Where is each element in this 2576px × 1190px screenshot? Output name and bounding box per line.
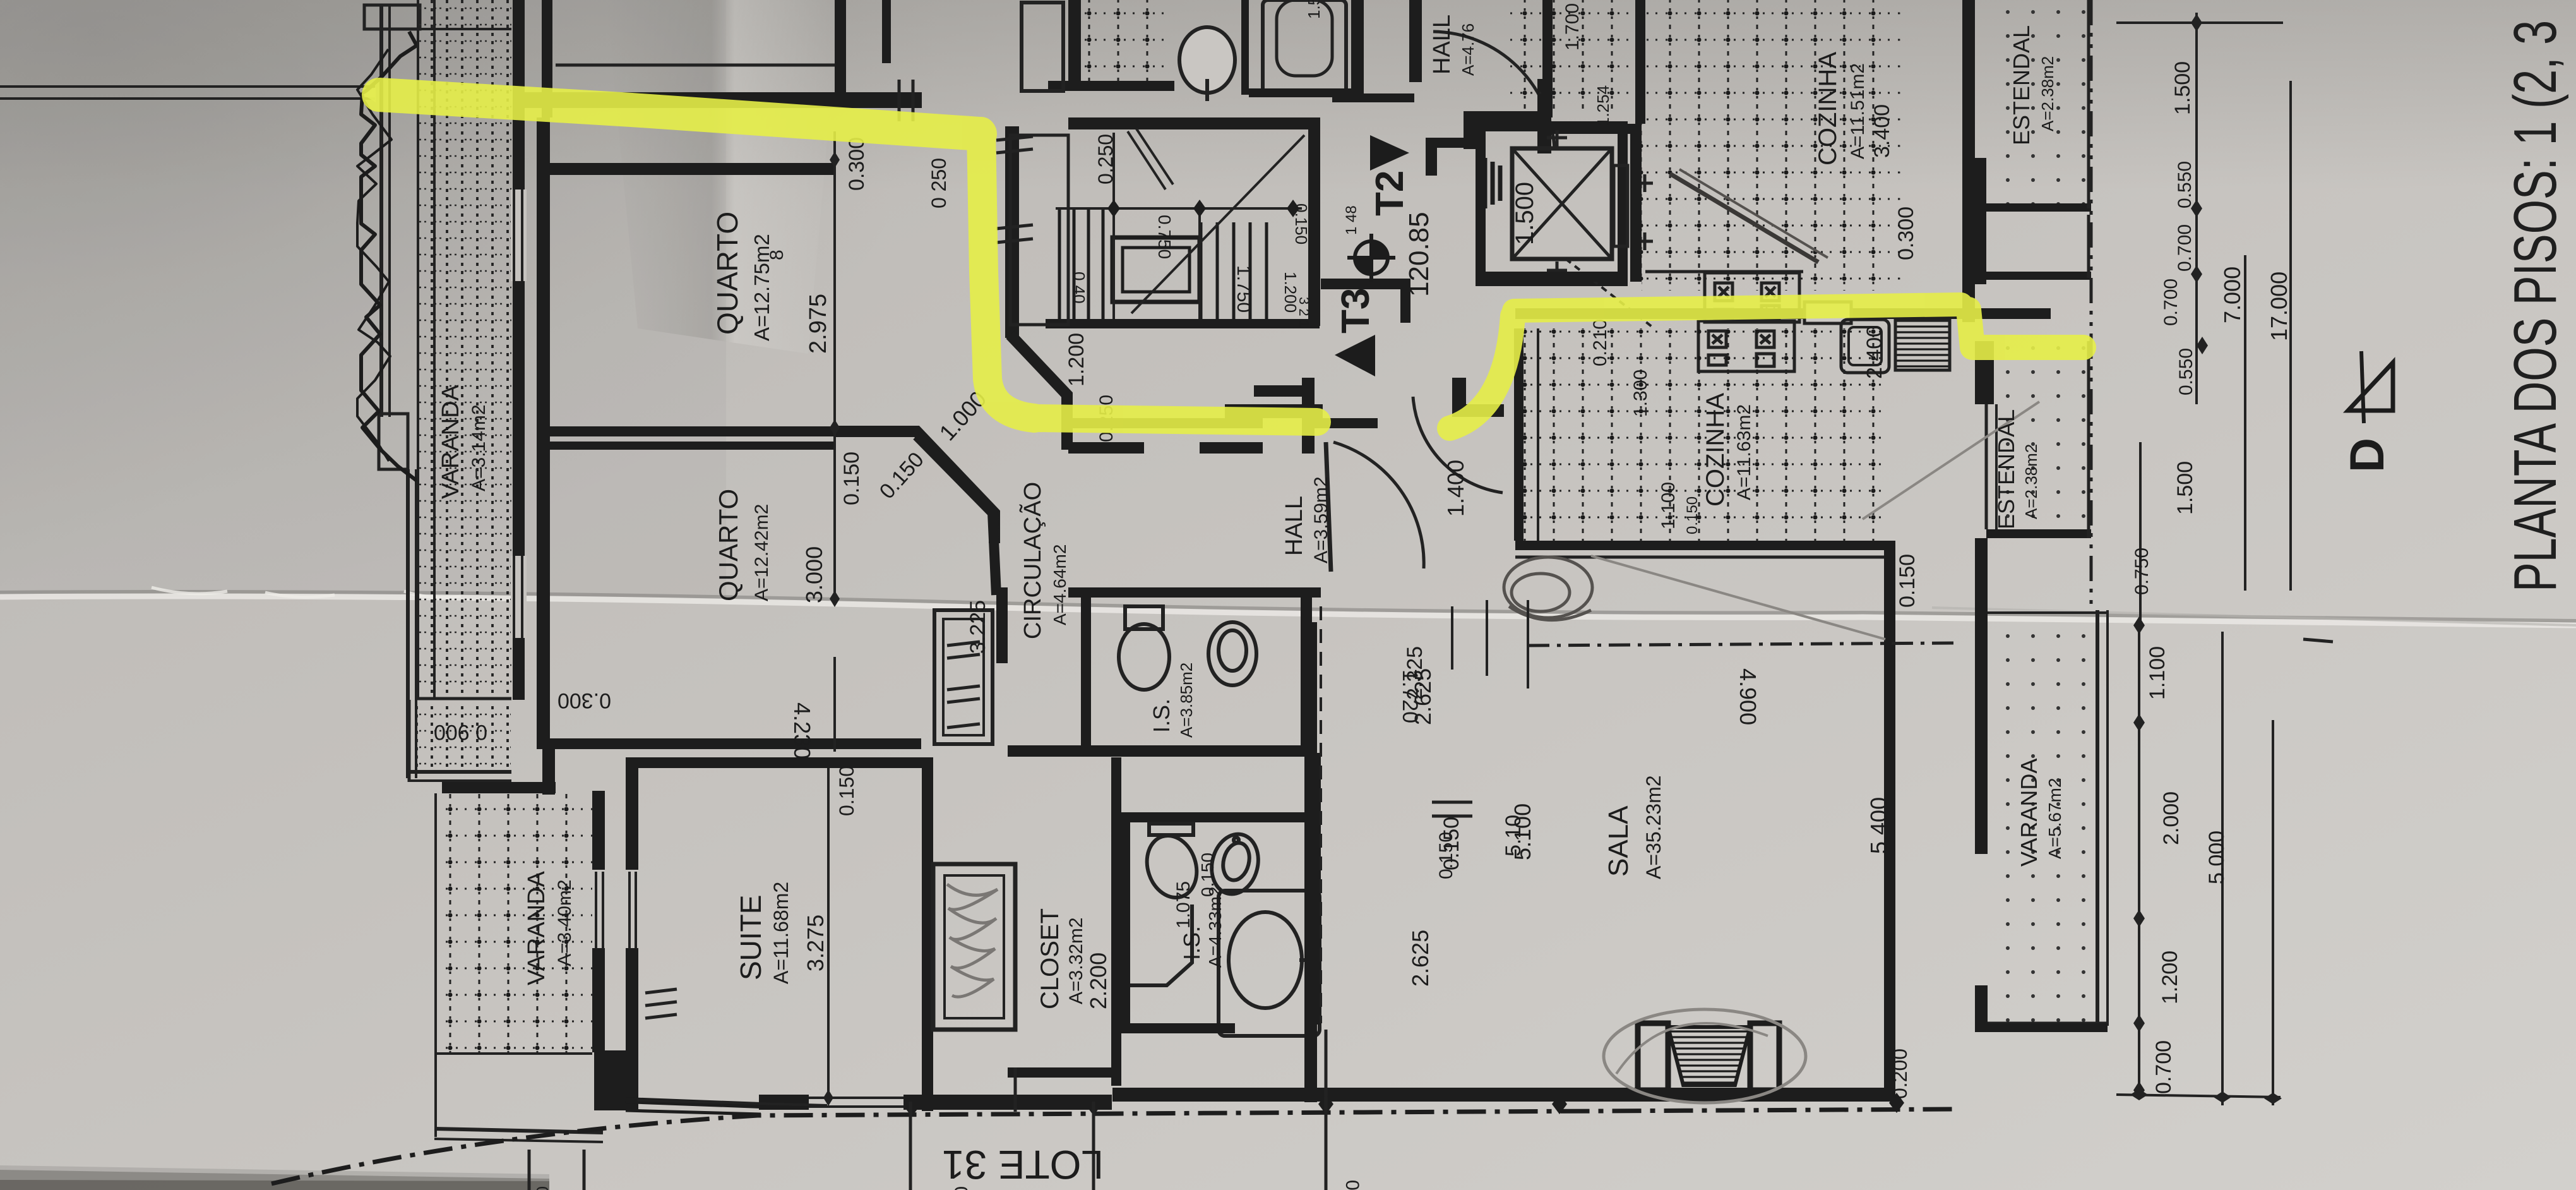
- svg-text:0.150: 0.150: [1440, 817, 1464, 870]
- svg-text:0.200: 0.200: [1888, 1049, 1911, 1099]
- svg-text:1.500: 1.500: [2171, 61, 2195, 115]
- svg-text:A=2.38m2: A=2.38m2: [2022, 444, 2041, 519]
- svg-text:1.700: 1.700: [1562, 3, 1583, 51]
- svg-text:A=3.59m2: A=3.59m2: [1311, 476, 1332, 563]
- svg-text:1.5: 1.5: [1304, 0, 1323, 19]
- svg-text:HALL: HALL: [1429, 15, 1455, 75]
- svg-text:0.750: 0.750: [1155, 215, 1174, 259]
- svg-text:1.075: 1.075: [1173, 881, 1194, 929]
- svg-text:I.S.: I.S.: [1148, 699, 1174, 733]
- svg-text:120.85: 120.85: [1404, 212, 1434, 297]
- svg-text:3.225: 3.225: [966, 600, 990, 654]
- svg-text:0.700: 0.700: [2152, 1040, 2176, 1094]
- svg-text:17.000: 17.000: [2266, 272, 2292, 341]
- svg-text:0.700: 0.700: [2161, 279, 2181, 326]
- svg-text:2.975: 2.975: [805, 294, 832, 354]
- svg-text:1.300: 1.300: [1630, 370, 1651, 417]
- svg-text:0.300: 0.300: [1894, 207, 1918, 260]
- svg-text:A=4.64m2: A=4.64m2: [1050, 544, 1070, 625]
- svg-text:PLANTA DOS PISOS: 1 (2, 3: PLANTA DOS PISOS: 1 (2, 3: [2501, 20, 2569, 592]
- svg-text:ESTENDAL: ESTENDAL: [2008, 25, 2034, 145]
- svg-text:0.150: 0.150: [840, 452, 864, 505]
- svg-text:1.200: 1.200: [2158, 951, 2182, 1004]
- svg-text:3.275: 3.275: [802, 915, 828, 971]
- svg-text:A=12.42m2: A=12.42m2: [751, 504, 772, 601]
- svg-text:A=4.76: A=4.76: [1458, 23, 1477, 76]
- svg-text:0.900: 0.900: [434, 720, 487, 744]
- svg-text:1.254: 1.254: [1594, 85, 1613, 126]
- svg-text:3.000: 3.000: [801, 546, 827, 603]
- svg-text:2.000: 2.000: [2159, 791, 2183, 845]
- svg-text:7.000: 7.000: [2219, 267, 2245, 323]
- svg-text:3 2 1: 3 2 1: [1296, 297, 1312, 328]
- svg-text:VARANDA: VARANDA: [438, 384, 464, 499]
- svg-text:1.400: 1.400: [1443, 460, 1469, 517]
- svg-text:0.250: 0.250: [1094, 134, 1117, 184]
- svg-text:5.100: 5.100: [1510, 803, 1535, 860]
- svg-text:0.50: 0.50: [533, 1186, 552, 1190]
- svg-text:0 250: 0 250: [927, 158, 950, 208]
- svg-text:0.300: 0.300: [558, 688, 611, 712]
- svg-text:1 48: 1 48: [1343, 205, 1360, 235]
- svg-text:A=3.32m2: A=3.32m2: [1066, 917, 1087, 1004]
- svg-text:5.400: 5.400: [1866, 797, 1892, 854]
- svg-text:VARANDA: VARANDA: [523, 870, 550, 985]
- svg-text:0.550: 0.550: [2174, 161, 2195, 208]
- svg-text:T2: T2: [1368, 171, 1412, 216]
- svg-text:2.400: 2.400: [1863, 325, 1887, 379]
- svg-text:CIRCULAÇÃO: CIRCULAÇÃO: [1019, 482, 1046, 639]
- svg-text:1.500: 1.500: [1511, 182, 1539, 245]
- svg-text:0.300: 0.300: [845, 137, 869, 191]
- svg-text:A=11.68m2: A=11.68m2: [770, 882, 792, 984]
- svg-text:A=3.40m2: A=3.40m2: [554, 879, 575, 966]
- svg-text:8: 8: [766, 249, 787, 260]
- svg-text:0.150: 0.150: [1684, 496, 1701, 534]
- svg-text:A=2.38m2: A=2.38m2: [2038, 56, 2057, 131]
- svg-text:0.150: 0.150: [835, 766, 858, 816]
- svg-text:QUARTO: QUARTO: [711, 212, 744, 335]
- svg-text:CLOSET: CLOSET: [1036, 908, 1064, 1009]
- svg-text:4.900: 4.900: [1735, 668, 1761, 725]
- svg-text:A=35.23m2: A=35.23m2: [1642, 775, 1665, 879]
- svg-text:0.550: 0.550: [2176, 348, 2197, 395]
- svg-text:A=5.67m2: A=5.67m2: [2045, 778, 2065, 859]
- svg-text:A=3.14m2: A=3.14m2: [468, 404, 489, 491]
- svg-text:LOTE 31: LOTE 31: [942, 1142, 1104, 1187]
- svg-text:2.200: 2.200: [1085, 953, 1111, 1009]
- svg-text:0.700: 0.700: [2174, 224, 2195, 272]
- svg-text:COZINHA: COZINHA: [1814, 52, 1842, 165]
- svg-text:0.50: 0.50: [950, 1186, 971, 1190]
- svg-text:A=11.63m2: A=11.63m2: [1734, 404, 1755, 500]
- svg-text:1.720: 1.720: [1398, 670, 1422, 723]
- svg-text:D: D: [2340, 438, 2394, 472]
- svg-text:4.230: 4.230: [789, 702, 815, 759]
- svg-text:QUARTO: QUARTO: [713, 489, 743, 601]
- svg-text:SALA: SALA: [1603, 805, 1634, 877]
- svg-text:SUITE: SUITE: [734, 895, 767, 980]
- svg-text:0.150: 0.150: [1895, 554, 1919, 608]
- svg-text:VARANDA: VARANDA: [2016, 759, 2042, 867]
- svg-text:A=4.33m2: A=4.33m2: [1205, 887, 1225, 968]
- svg-text:A=3.85m2: A=3.85m2: [1177, 663, 1196, 738]
- svg-text:1.100: 1.100: [1658, 482, 1679, 529]
- svg-text:1.500: 1.500: [2173, 461, 2197, 515]
- svg-text:0.150: 0.150: [1342, 1180, 1363, 1190]
- svg-text:0.750: 0.750: [2132, 548, 2152, 595]
- svg-text:1.750: 1.750: [1233, 265, 1254, 313]
- svg-text:3.400: 3.400: [1870, 104, 1894, 158]
- svg-text:ESTENDAL: ESTENDAL: [1993, 409, 2019, 529]
- svg-text:0.150: 0.150: [1198, 853, 1217, 897]
- svg-text:HALL: HALL: [1281, 496, 1308, 556]
- svg-text:0.40: 0.40: [1070, 272, 1088, 304]
- svg-text:T3: T3: [1334, 288, 1378, 334]
- svg-text:COZINHA: COZINHA: [1702, 393, 1729, 507]
- svg-text:1.200: 1.200: [1064, 333, 1088, 387]
- svg-text:0.210: 0.210: [1590, 319, 1611, 366]
- svg-text:5.000: 5.000: [2205, 831, 2229, 884]
- svg-text:1.100: 1.100: [2145, 646, 2169, 700]
- svg-text:I.S.: I.S.: [1179, 926, 1205, 960]
- svg-text:0.150: 0.150: [1292, 203, 1311, 244]
- svg-text:A=11.51m2: A=11.51m2: [1847, 63, 1868, 159]
- svg-text:2.625: 2.625: [1407, 930, 1433, 987]
